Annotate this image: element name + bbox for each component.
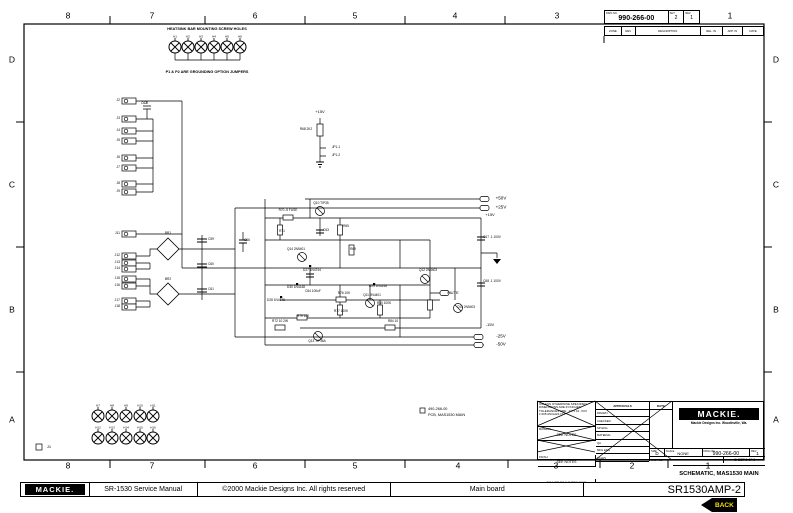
scale-label: SCALE (666, 450, 675, 453)
schematic-label: D29 1N4148 (369, 285, 387, 289)
resistor-symbols (275, 124, 433, 330)
note-jumpers: P1 & P2 ARE GROUNDING OPTION JUMPERS (166, 70, 249, 74)
rev-value: 1 (690, 15, 693, 21)
grid-number-bottom: 6 (253, 461, 258, 470)
approval-row: QA (596, 440, 649, 447)
schematic-label: R79 100 (297, 315, 309, 319)
material-cell: MATERIAL: SEE NOTES (538, 427, 596, 441)
screw-hole-label: H10 (137, 404, 143, 407)
schematic-label: +25V (496, 206, 507, 211)
connector-label: J5 (117, 139, 120, 143)
company-line: Mackie Designs Inc. Woodinville, Wa. (691, 421, 747, 425)
screw-hole-label: H15 (137, 426, 143, 429)
schematic-label: Q11 2N4401 (363, 294, 381, 298)
grid-number-bottom: 4 (456, 461, 461, 470)
schematic-label: C59 (208, 238, 214, 242)
schematic-label: R84 10 (388, 320, 398, 324)
screw-hole-label: H5 (225, 35, 229, 38)
dwg-label: DWG NO. (704, 450, 716, 453)
schematic-label: BR2 (165, 278, 171, 282)
screw-hole-label: H14 (123, 426, 129, 429)
schematic-label: -25V (496, 335, 506, 340)
rev-label2: REV (751, 450, 756, 453)
note-pcb-line2: PCB, MAS1530 MAIN (428, 413, 465, 417)
grid-number-top: 5 (353, 11, 358, 20)
schematic-label: C66 (244, 239, 250, 243)
schematic-label: R76 10K (338, 292, 350, 296)
schematic-label: Q12 2N4403 (419, 269, 437, 273)
revision-header-cell: APP. IN (722, 27, 743, 35)
revision-header-cell: REV (621, 27, 635, 35)
connector-label: J18 (115, 305, 120, 309)
grid-number-top: 8 (66, 11, 71, 20)
screw-hole-label: H12 (95, 426, 101, 429)
revision-header-cell: DATE (742, 27, 763, 35)
scale-value: NONE (677, 451, 689, 456)
screw-hole-label: H9 (124, 404, 128, 407)
connector-label: J8 (117, 182, 120, 186)
title-block: UNLESS OTHERWISE SPECIFIED DIMENSIONS AR… (537, 401, 764, 460)
material-value: SEE NOTES (556, 433, 576, 437)
grid-number-top: 4 (453, 11, 458, 20)
screw-hole-label: H6 (238, 35, 242, 38)
sheet-cell: SHT 2 (668, 11, 684, 23)
material-label: MATERIAL: (539, 428, 553, 431)
grid-number-bottom: 7 (150, 461, 155, 470)
back-button-label: BACK (712, 498, 737, 512)
rev-label: REV (685, 12, 690, 15)
dwg-no-cell: DWG NO. 990-266-00 (605, 11, 668, 23)
schematic-label: R80 100K (377, 302, 391, 306)
schematic-label: J1 (47, 445, 51, 449)
grid-number-top: 3 (555, 11, 560, 20)
connector-label: J3 (117, 117, 120, 121)
date-column: DATE (649, 402, 673, 448)
schematic-label: R77 100K (334, 310, 348, 314)
schematic-sheet: DWG NO. 990-266-00 SHT 2 REV 1 ZONEREVDE… (0, 0, 793, 513)
grid-letter-left: A (9, 415, 15, 424)
drawing-title: SCHEMATIC, MAS1530 MAIN (673, 465, 765, 482)
screw-hole-label: H7 (96, 404, 100, 407)
schematic-label: C62 (141, 102, 147, 106)
titleblock-logo-cell: MACKIE. Mackie Designs Inc. Woodinville,… (673, 402, 765, 431)
schematic-label: -50V (496, 343, 506, 348)
dwg-number-box: DWG NO. 990-266-00 SHT 2 REV 1 (604, 10, 700, 24)
screw-hole-label: H3 (199, 35, 203, 38)
dwg-value: 990-266-00 (713, 451, 740, 457)
mackie-logo: MACKIE. (679, 408, 759, 420)
approval-row: MATERIAL (596, 432, 649, 439)
schematic-label: MUTE (447, 291, 458, 295)
scale-cell: SCALE NONE (664, 449, 702, 456)
finish-label: FINISH: (539, 456, 548, 459)
screw-hole-label: H16 (150, 426, 156, 429)
grid-number-top: 6 (253, 11, 258, 20)
approval-row: MFG ENG (596, 447, 649, 454)
size-cell: SIZE D (650, 449, 664, 456)
grid-number-bottom: 3 (554, 461, 559, 470)
generated-symbols (92, 38, 246, 444)
schematic-label: Q13 TIP36A (308, 340, 325, 344)
connector-label: J12 (115, 254, 120, 258)
connector-label: J15 (115, 277, 120, 281)
footer-logo-cell: MACKIE. (21, 483, 89, 496)
note-pcb-line1: 490-266-00 (428, 407, 447, 411)
sheet-border (24, 24, 764, 460)
cad-file-cell: CAD FILE (650, 457, 723, 463)
dwg-no-label: DWG NO. (606, 12, 618, 15)
schematic-label: +15V (485, 213, 494, 217)
schematic-label: R69 (350, 248, 356, 252)
screw-hole-label: H8 (110, 404, 114, 407)
footer-mackie-logo: MACKIE. (25, 484, 85, 495)
sheet-value: 2 (675, 15, 678, 21)
pcb-note-square (420, 408, 425, 413)
schematic-label: C68 .1 100V (483, 280, 501, 284)
revision-table: ZONEREVDESCRIPTIONREL. INAPP. INDATE (604, 26, 764, 36)
revision-header-cell: ZONE (605, 27, 621, 35)
schematic-label: JP1-2 (332, 154, 340, 158)
schematic-label: C60 (208, 263, 214, 267)
grid-letter-left: D (9, 55, 15, 64)
schematic-label: C64 100uF (305, 290, 321, 294)
connector-label: J14 (115, 267, 120, 271)
screw-hole-label: H2 (186, 35, 190, 38)
approval-row: SALES (596, 454, 649, 461)
tolerance-note: UNLESS OTHERWISE SPECIFIED DIMENSIONS AR… (538, 402, 596, 427)
finish-value: SEE NOTES (556, 460, 576, 464)
back-arrow-icon (701, 498, 712, 512)
approval-row: DRAWN (596, 410, 649, 417)
footer-doc-id: SR1530AMP-2 (583, 483, 744, 496)
note-heatsink: HEATSINK BAR MOUNTING SCREW HOLES (167, 27, 246, 31)
footer-copyright: ©2000 Mackie Designs Inc. All rights res… (197, 483, 390, 496)
screw-hole-label: H4 (212, 35, 216, 38)
rail-connectors (36, 197, 489, 451)
approvals-column: APPROVALS DRAWNCHECKEDSP ENGMATERIALQAMF… (596, 402, 649, 461)
schematic-label: R72 10 2W (272, 320, 288, 324)
schematic-label: D28 1N4148 (267, 299, 285, 303)
schematic-label: C61 (208, 288, 214, 292)
grid-number-bottom: 1 (706, 461, 711, 470)
transistor-symbols (298, 207, 463, 341)
sheet-of-cell: SHEET 2 OF 2 (723, 457, 765, 463)
connector-label: J4 (117, 129, 120, 133)
bridge-rectifiers (157, 238, 179, 305)
schematic-label: JP1-1 (332, 146, 340, 150)
sheet-label: SHT (670, 12, 675, 15)
grid-letter-right: C (773, 180, 779, 189)
footer-board: Main board (390, 483, 583, 496)
connector-label: J16 (115, 284, 120, 288)
footer-bar: MACKIE. SR-1530 Service Manual ©2000 Mac… (20, 482, 745, 497)
grid-number-bottom: 8 (66, 461, 71, 470)
size-label: SIZE (651, 450, 657, 453)
connector-label: J17 (115, 299, 120, 303)
screw-hole-label: H1 (173, 35, 177, 38)
grid-letter-left: B (9, 305, 15, 314)
approval-rows: DRAWNCHECKEDSP ENGMATERIALQAMFG ENGSALES (596, 410, 649, 462)
grid-letter-right: D (773, 55, 779, 64)
schematic-label: C67 .1 100V (483, 236, 501, 240)
dwg-cell: DWG NO. 990-266-00 (702, 449, 750, 456)
schematic-label: R65 (343, 225, 349, 229)
j1-square (36, 444, 42, 450)
schematic-label: D27 1N4744 (303, 269, 321, 273)
connector-label: J13 (115, 261, 120, 265)
schematic-label: D30 1N4148 (287, 286, 305, 290)
date-header: DATE (650, 402, 672, 410)
revision-header-cell: REL. IN (700, 27, 722, 35)
schematic-label: Q14 2N5401 (287, 248, 305, 252)
revision-header-cell: DESCRIPTION (635, 27, 700, 35)
grid-letter-right: A (773, 415, 779, 424)
approvals-header: APPROVALS (596, 402, 649, 410)
grid-number-top: 1 (728, 11, 733, 20)
rev-cell2: REV 1 (749, 449, 765, 456)
screw-hole-label: H11 (150, 404, 155, 407)
back-button[interactable]: BACK (701, 498, 737, 512)
approval-row: CHECKED (596, 417, 649, 424)
schematic-label: -15V (486, 323, 494, 327)
grid-number-bottom: 5 (353, 461, 358, 470)
connector-label: J2 (117, 99, 120, 103)
schematic-label: BR1 (165, 232, 171, 236)
connector-label: J6 (117, 156, 120, 160)
grid-letter-left: C (9, 180, 15, 189)
grid-number-top: 7 (150, 11, 155, 20)
grid-number-bottom: 2 (630, 461, 635, 470)
schematic-wires (136, 53, 497, 345)
connector-label: J11 (115, 232, 120, 236)
schematic-label: Q10 TIP35 (313, 202, 328, 206)
schematic-label: +15V (315, 110, 324, 114)
approval-row: SP ENG (596, 425, 649, 432)
grid-letter-right: B (773, 305, 779, 314)
connector-label: J9 (117, 190, 120, 194)
footer-manual: SR-1530 Service Manual (89, 483, 197, 496)
rev-value2: 1 (756, 451, 759, 456)
connector-label: J7 (117, 166, 120, 170)
rev-cell: REV 1 (683, 11, 699, 23)
schematic-label: C63 (323, 229, 329, 233)
schematic-label: R70 .5 FUSE (279, 209, 298, 213)
schematic-label: R71 (279, 230, 285, 234)
schematic-label: Q15 2N5403 (457, 306, 475, 310)
schematic-label: R68 2K2 (300, 128, 312, 132)
size-scale-block: SIZE D SCALE NONE DWG NO. 990-266-00 REV… (649, 448, 765, 461)
finish-cell: FINISH: SEE NOTES (538, 455, 596, 467)
dwg-no-value: 990-266-00 (618, 15, 654, 22)
schematic-label: +50V (496, 197, 507, 202)
screw-hole-label: H13 (109, 426, 115, 429)
